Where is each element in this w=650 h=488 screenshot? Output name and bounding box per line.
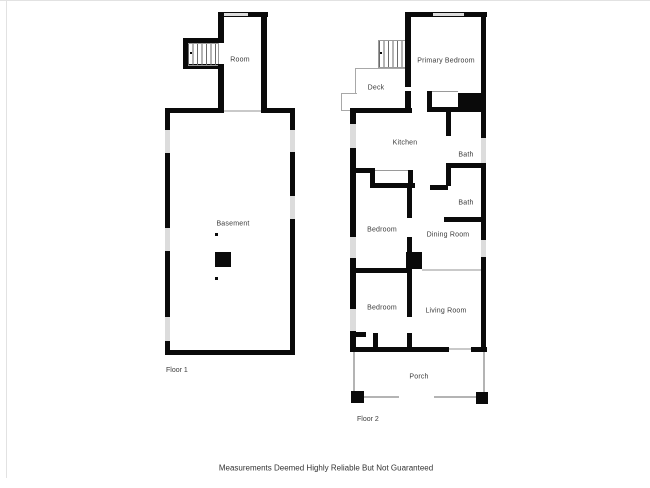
- porch-post: [476, 392, 488, 404]
- wall: [373, 333, 378, 352]
- living-room-label: Living Room: [425, 308, 466, 315]
- wall: [165, 108, 224, 113]
- bath-label: Bath: [458, 152, 473, 159]
- marker-dot: [215, 233, 218, 236]
- wall: [261, 12, 267, 113]
- window: [290, 196, 295, 219]
- window: [481, 138, 486, 164]
- chimney: [406, 252, 422, 269]
- wall: [350, 108, 412, 113]
- wall: [407, 273, 412, 317]
- wall: [350, 332, 366, 337]
- opening-line: [224, 110, 261, 112]
- wall: [350, 347, 449, 352]
- bedroom-label: Bedroom: [367, 227, 397, 234]
- top-border-line: [0, 0, 650, 1]
- wall: [430, 185, 448, 190]
- stair-marker-dot: [380, 52, 382, 54]
- chimney: [215, 252, 231, 267]
- floor1-label: Floor 1: [166, 367, 188, 374]
- window: [165, 228, 170, 251]
- primary-bedroom-label: Primary Bedroom: [417, 58, 474, 65]
- closet-line: [375, 170, 408, 171]
- floorplan-image: Room Basement Floor 1: [0, 0, 650, 488]
- porch-label: Porch: [409, 374, 428, 381]
- wall: [446, 112, 451, 136]
- left-border-line: [6, 0, 7, 478]
- kitchen-label: Kitchen: [393, 140, 418, 147]
- porch-edge-line: [363, 396, 399, 398]
- basement-label: Basement: [216, 221, 249, 228]
- window: [433, 13, 464, 16]
- wall: [165, 350, 295, 355]
- deck-label: Deck: [368, 85, 385, 92]
- wall: [427, 107, 481, 112]
- disclaimer-text: Measurements Deemed Highly Reliable But …: [219, 464, 433, 473]
- wall: [446, 168, 451, 186]
- bath-label: Bath: [458, 200, 473, 207]
- wall: [405, 12, 411, 87]
- closet-line: [432, 91, 458, 92]
- marker-dot: [215, 277, 218, 280]
- wall: [218, 64, 224, 113]
- window: [481, 240, 486, 257]
- window: [350, 237, 356, 258]
- wall: [446, 163, 486, 168]
- opening-line: [449, 348, 471, 350]
- porch-edge-line: [483, 352, 485, 397]
- window: [165, 130, 170, 153]
- stair-marker-dot: [190, 52, 192, 54]
- dining-room-label: Dining Room: [427, 232, 470, 239]
- window: [222, 13, 248, 16]
- wall: [444, 217, 486, 222]
- stairs-icon: [188, 43, 219, 66]
- wall: [407, 188, 412, 218]
- bedroom-label: Bedroom: [367, 305, 397, 312]
- room-label: Room: [230, 57, 249, 64]
- wall: [481, 12, 486, 352]
- room-divider-line: [422, 269, 481, 271]
- porch-post: [351, 391, 364, 403]
- window: [165, 317, 170, 341]
- window: [290, 130, 295, 152]
- wall: [407, 333, 412, 352]
- wall: [407, 237, 412, 253]
- porch-edge-line: [434, 396, 477, 398]
- wall: [353, 268, 412, 273]
- window: [350, 124, 356, 148]
- window: [350, 309, 356, 331]
- floor2-label: Floor 2: [357, 416, 379, 423]
- stairs-icon: [378, 40, 405, 68]
